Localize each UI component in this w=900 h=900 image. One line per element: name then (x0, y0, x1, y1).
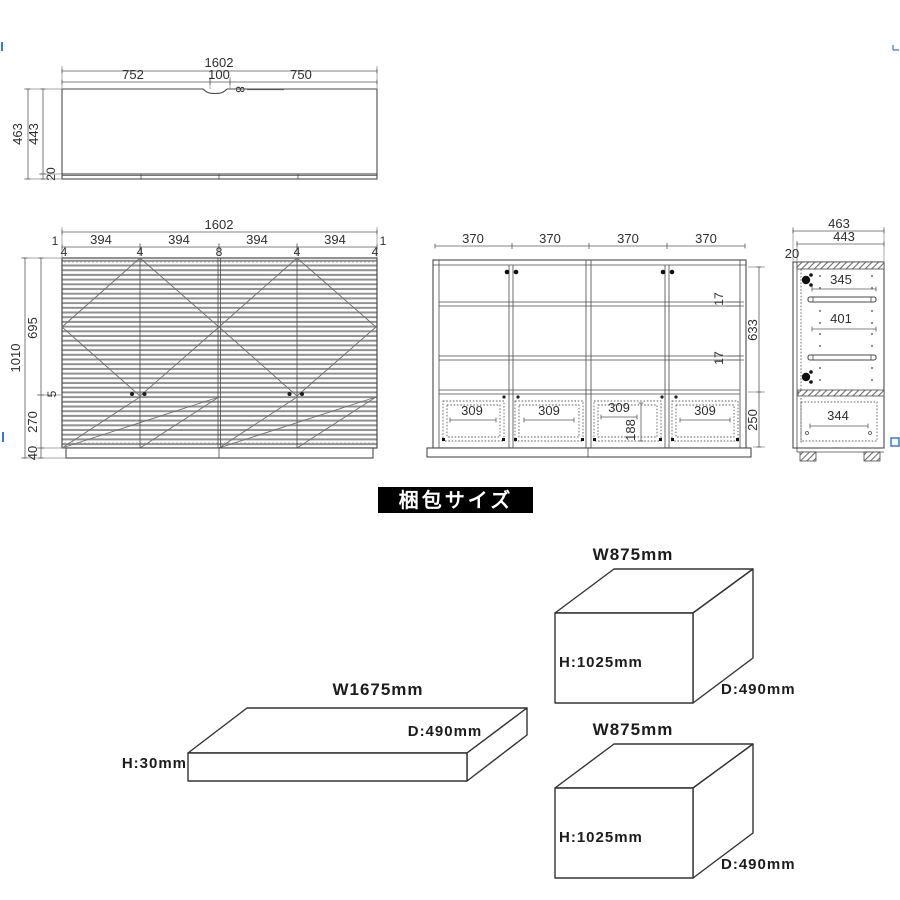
dim-side-panel-thickness: 20 (785, 246, 799, 261)
dim-section-1: 370 (462, 231, 484, 246)
hinge-dot (661, 270, 666, 275)
packing-section: 梱包サイズ W875mm H:1025mm D:490mm W1675mm D:… (122, 487, 796, 878)
dim-drawer-height: 188 (623, 419, 638, 441)
dim-front-panel-1: 394 (90, 232, 112, 247)
top-view: 8 1602 752 100 750 463 443 20 (10, 55, 377, 181)
dim-section-2: 370 (539, 231, 561, 246)
hinge-dot (514, 270, 519, 275)
hinge-dot (670, 270, 675, 275)
side-view: 345 401 344 463 443 20 (785, 216, 884, 461)
dim-side-depth-inner: 443 (833, 229, 855, 244)
dim-front-gap-5: 4 (372, 245, 379, 259)
handle-dot (674, 395, 677, 398)
dim-front-edge-left: 1 (52, 234, 59, 248)
dim-side-gap-bottom: 344 (827, 408, 849, 423)
dimension-drawing: 8 1602 752 100 750 463 443 20 (0, 0, 900, 900)
dim-front-height-lower: 270 (25, 411, 40, 433)
packing-box-upper: W875mm H:1025mm D:490mm (555, 545, 796, 703)
dim-top-depth-total: 463 (10, 123, 25, 145)
dim-bottom-height: 250 (745, 409, 760, 431)
packing-lower-width: W875mm (593, 720, 674, 739)
dim-front-gap-2: 4 (137, 245, 144, 259)
dim-shelf-thickness-2: 17 (712, 351, 726, 365)
dim-front-panel-2: 394 (168, 232, 190, 247)
dim-shelf-thickness-1: 17 (712, 292, 726, 306)
dim-side-gap-mid: 401 (830, 311, 852, 326)
dim-drawer-2: 309 (538, 403, 560, 418)
dim-front-panel-3: 394 (246, 232, 268, 247)
inner-view: 370 370 370 370 17 17 633 250 309 309 30… (427, 231, 765, 457)
packing-flat-depth: D:490mm (408, 723, 483, 740)
dim-drawer-4: 309 (694, 403, 716, 418)
dim-top-width-right: 750 (290, 67, 312, 82)
dim-top-width-center: 100 (208, 67, 230, 82)
packing-lower-height: H:1025mm (559, 829, 643, 846)
front-view: 1602 1 394 394 394 394 1 4 4 8 4 4 1010 … (8, 217, 387, 460)
handle-dot (516, 395, 519, 398)
dim-section-4: 370 (695, 231, 717, 246)
handle-dot (300, 392, 304, 396)
handle-dot (130, 392, 134, 396)
packing-box-flat: W1675mm D:490mm H:30mm (122, 680, 527, 781)
dim-front-gap-3: 8 (216, 245, 223, 259)
packing-upper-width: W875mm (593, 545, 674, 564)
dim-notch-depth: 8 (233, 86, 247, 93)
packing-flat-width: W1675mm (332, 680, 423, 699)
dim-inner-height: 633 (745, 319, 760, 341)
dim-section-3: 370 (617, 231, 639, 246)
packing-badge-label: 梱包サイズ (399, 488, 513, 512)
dim-top-width-left: 752 (122, 67, 144, 82)
dim-front-handle-gap: 5 (45, 390, 59, 397)
handle-dot (288, 392, 292, 396)
dim-top-edge: 20 (44, 167, 58, 181)
dim-top-depth-inner: 443 (26, 123, 41, 145)
dim-front-panel-4: 394 (324, 232, 346, 247)
handle-dot (502, 395, 505, 398)
dim-front-gap-1: 4 (61, 245, 68, 259)
dim-front-base-height: 40 (25, 446, 40, 460)
dim-drawer-3: 309 (608, 400, 630, 415)
dim-front-height-upper: 695 (25, 317, 40, 339)
dim-front-edge-right: 1 (380, 234, 387, 248)
packing-upper-depth: D:490mm (721, 681, 796, 698)
dim-front-width-total: 1602 (205, 217, 234, 232)
dim-drawer-1: 309 (461, 403, 483, 418)
packing-box-lower: W875mm H:1025mm D:490mm (555, 720, 796, 878)
hinge-dot (505, 270, 510, 275)
dim-front-gap-4: 4 (294, 245, 301, 259)
packing-lower-depth: D:490mm (721, 856, 796, 873)
furniture-dimension-sheet: 8 1602 752 100 750 463 443 20 (0, 0, 900, 900)
dim-front-height-total: 1010 (8, 344, 23, 373)
packing-upper-height: H:1025mm (559, 654, 643, 671)
packing-flat-height: H:30mm (122, 755, 187, 772)
dim-side-gap-top: 345 (830, 272, 852, 287)
handle-dot (143, 392, 147, 396)
handle-dot (660, 395, 663, 398)
